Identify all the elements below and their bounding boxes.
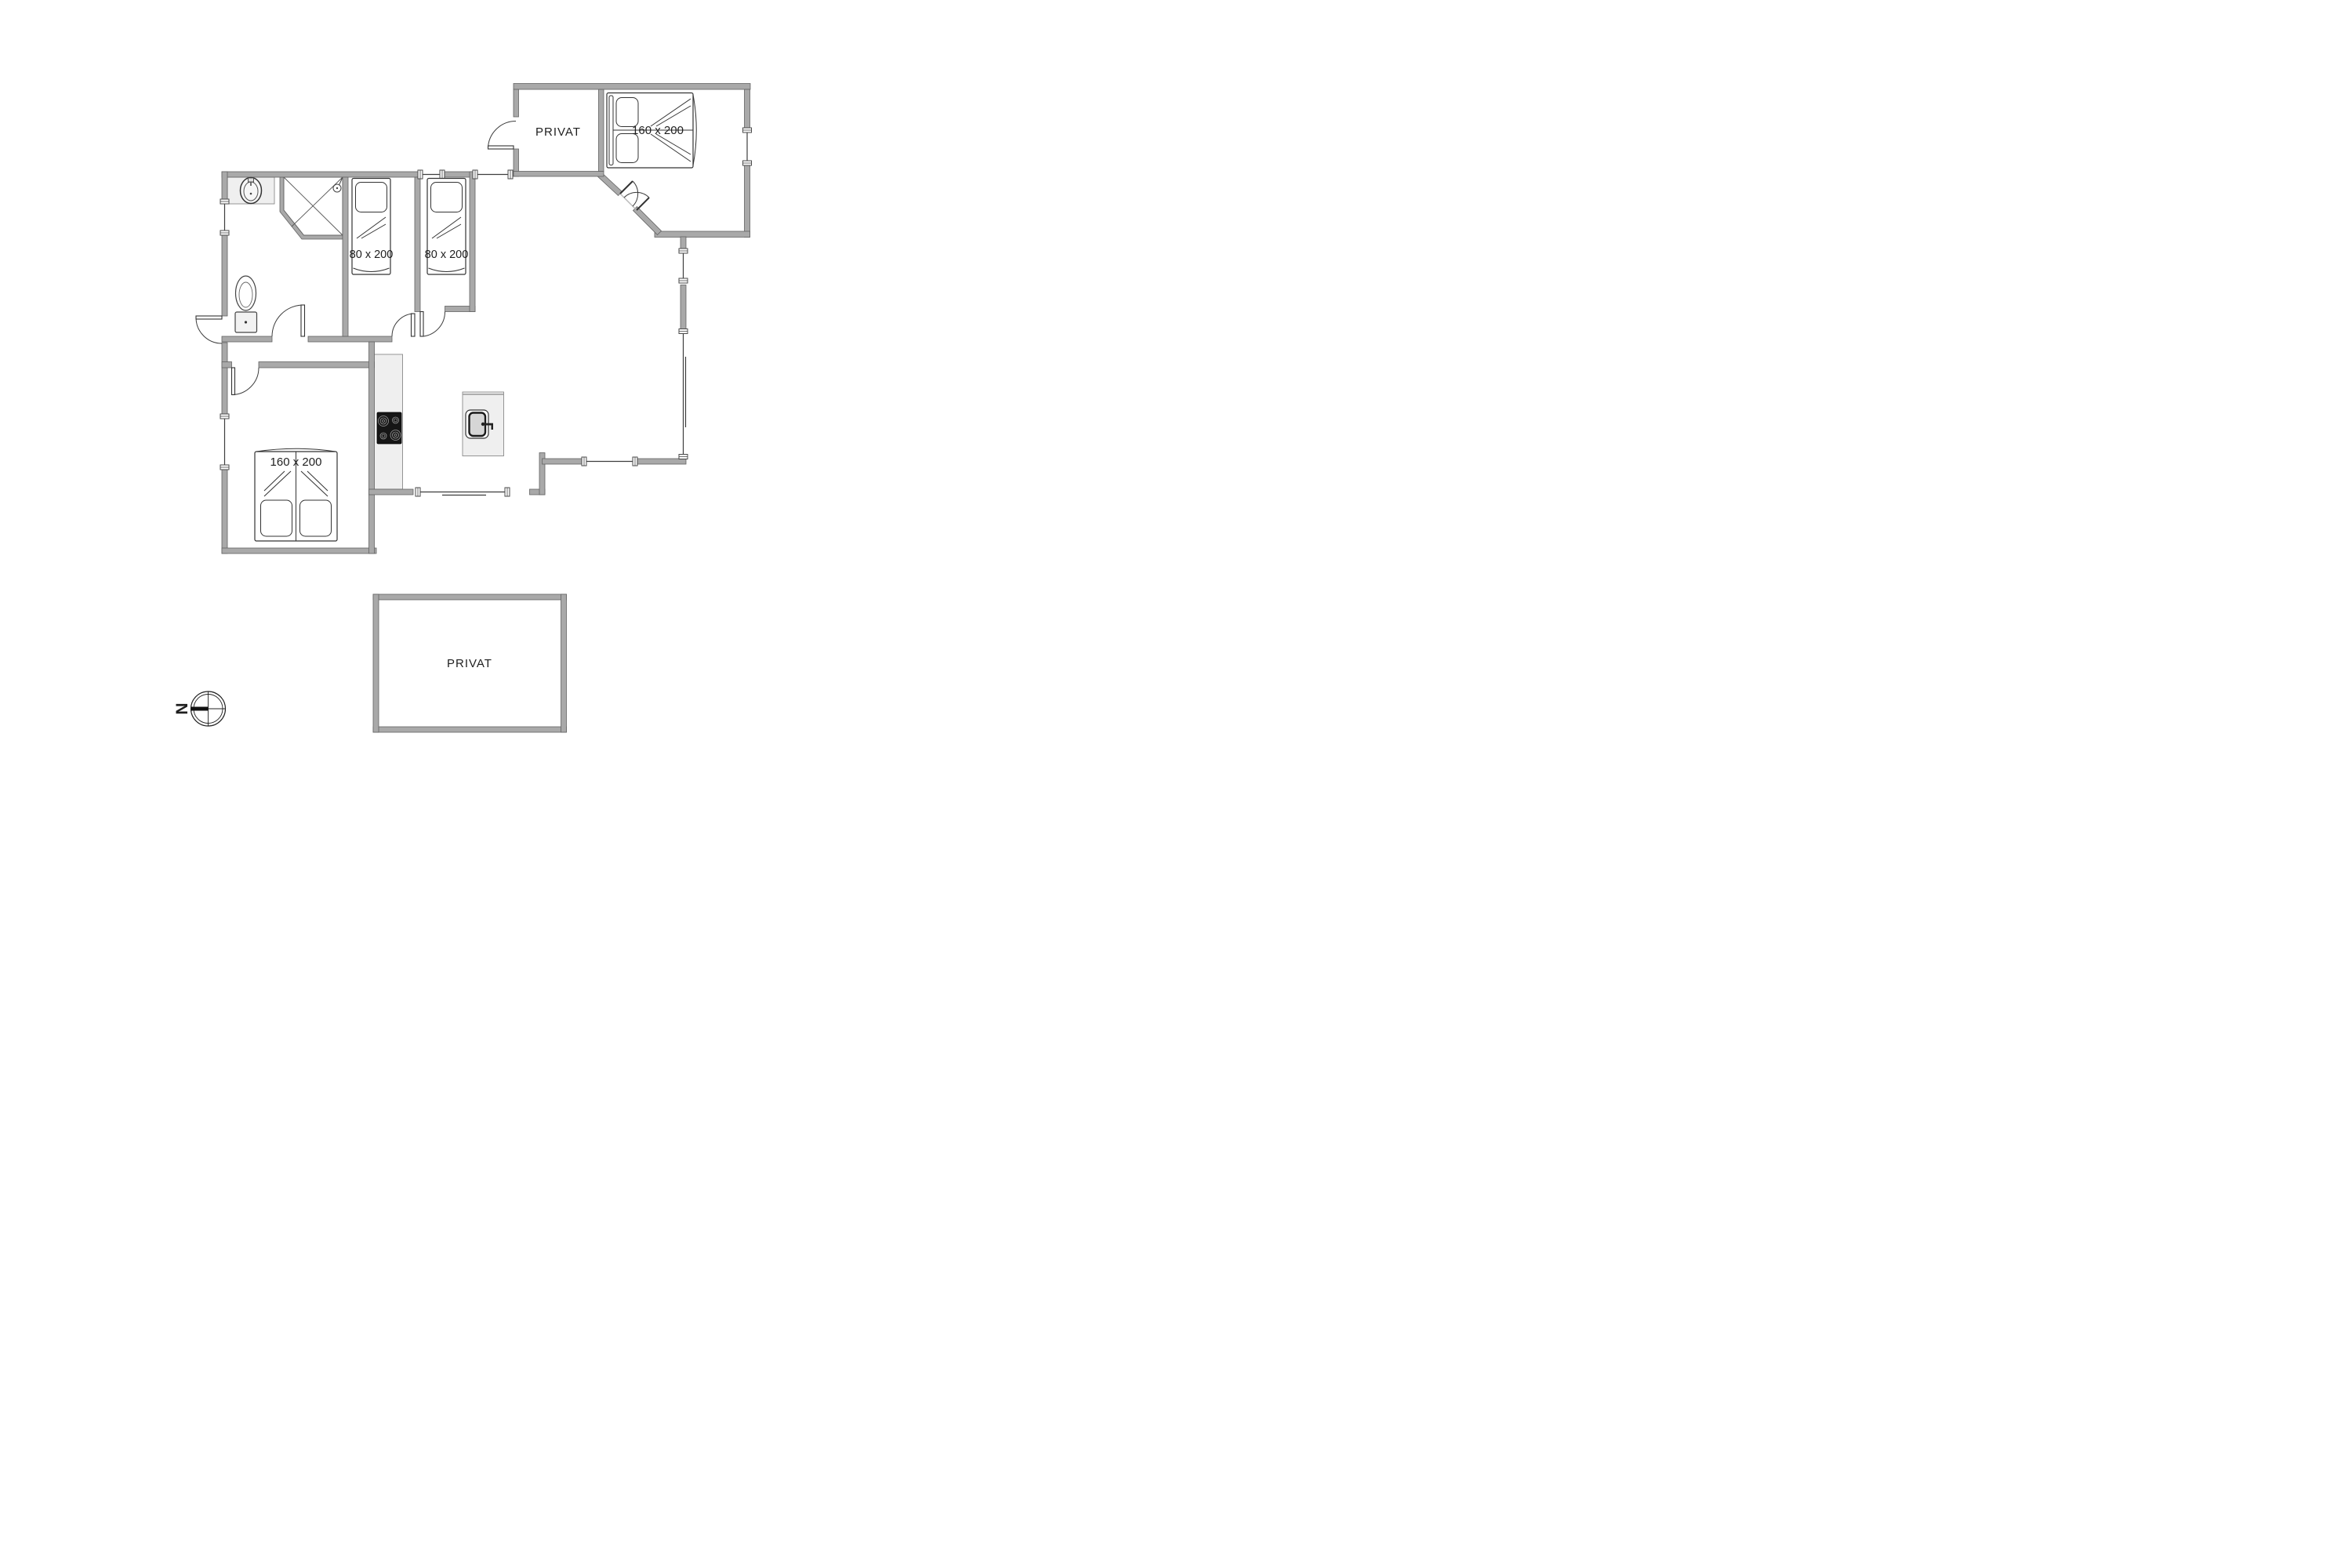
wall-privat-bottom [514,172,604,177]
wall-bedroom-bl-right [369,342,375,554]
annex-wall-bottom [373,727,567,732]
wall-topright-top [514,84,750,90]
bed-double-bottom-pillow-1 [261,500,292,536]
bath-faucet [249,178,254,182]
label-bed-double-top: 160 x 200 [632,124,684,137]
label-bed-single-1: 80 x 200 [350,249,394,261]
label-compass-north: N [173,702,191,714]
wall-midblock-top-a [222,172,420,177]
label-bed-single-2: 80 x 200 [425,249,469,261]
compass-north-bar [191,707,209,711]
door-bathroom-leaf [301,305,305,336]
bed-double-top-foot [693,95,696,165]
wall-topright-bottom [655,231,750,238]
label-bed-double-bottom: 160 x 200 [270,456,322,469]
wall-left-2 [222,233,227,316]
door-bedroom1-leaf [412,314,416,336]
cooktop [377,412,401,444]
wall-privat-left-a [514,89,519,117]
wall-bath-bottom-b [308,336,392,342]
shower-head-dot [336,187,338,189]
wall-right-s2 [681,285,686,332]
annex-wall-right [561,594,567,732]
wall-bedroom-bl-top-b [259,362,375,368]
wall-bed2-right [470,172,475,312]
wall-topright-right-1 [745,89,750,130]
bed-double-bottom-pillow-2 [300,500,332,536]
wall-bedroom-bl-bottom [222,548,376,554]
bed-single-2-pillow [431,183,463,212]
door-diagonal-leaf-2 [637,198,649,210]
door-diagonal-arc-1 [633,181,638,206]
door-privat-arc [488,122,517,150]
bed-double-top-headboard [609,96,613,165]
wall-bedroom-bl-top-a [222,362,232,368]
toilet-flush-dot [245,321,247,323]
floor-plan-svg: PRIVAT160 x 20080 x 20080 x 200160 x 200… [0,0,1176,784]
wall-divider-bed1-bed2 [415,177,420,312]
wall-diagonal-lower [633,207,662,235]
wall-topright-right-2 [745,163,750,238]
wall-bath-bottom-a [222,336,272,342]
door-bedroom-bl-arc [232,368,260,395]
door-diagonal-leaf-1 [620,181,633,194]
door-bedroom2-arc [423,312,445,337]
bath-sink-drain [250,193,252,195]
floor-plan-page: PRIVAT160 x 20080 x 20080 x 200160 x 200… [0,0,1176,784]
door-bedroom-bl-leaf [232,368,235,395]
door-diagonal-threshold [620,194,637,210]
door-entrance-arc [196,318,222,343]
door-entrance-leaf [196,316,222,319]
wall-bottomright-b [635,459,686,464]
wall-left-1 [222,172,227,201]
toilet-bowl [236,276,256,310]
island-faucet-hook [492,425,494,430]
wall-left-4 [222,467,227,554]
door-diagonal-arc-2 [624,192,649,198]
wall-bottomright-a [543,459,585,464]
label-private-top: PRIVAT [535,125,581,139]
annex-wall-top [373,594,567,600]
bed-single-1-pillow [356,183,387,212]
bed-double-top-pillow-2 [616,134,638,163]
label-private-annex: PRIVAT [447,657,492,670]
annex-wall-left [373,594,379,732]
wall-living-bottom-a [369,489,414,495]
wall-divider-bath-bed1 [343,177,348,336]
bed-double-top-pillow-1 [616,98,638,127]
door-bedroom2-leaf [420,312,423,337]
door-bathroom-arc [272,305,303,336]
wall-left-3 [222,343,227,416]
wall-privat-divider [599,89,604,172]
door-privat-leaf [488,146,514,149]
